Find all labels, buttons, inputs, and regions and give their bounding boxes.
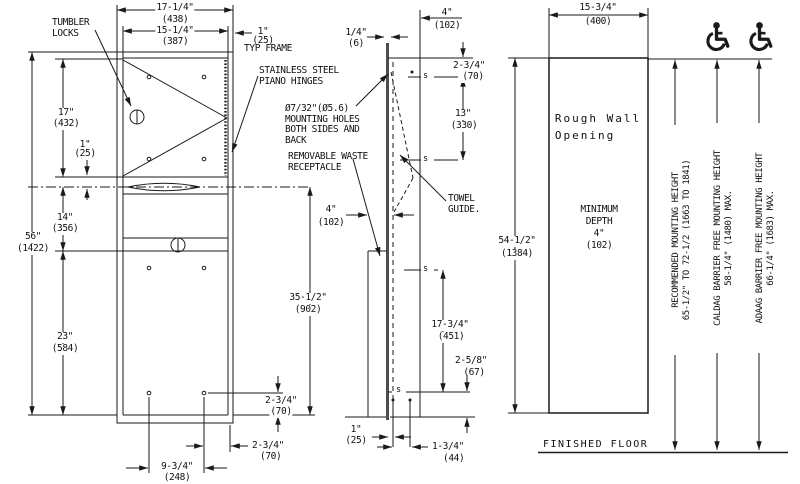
towel-guide-dashed: [391, 72, 413, 212]
dim-depth-mid-mm: (102): [318, 218, 345, 229]
dim-lower-height-in: 23": [56, 332, 74, 343]
dim-front-gap-in: 1-3/4": [432, 442, 464, 453]
caldag-mounting-height-label: CALDAG BARRIER FREE MOUNTING HEIGHT 58-1…: [713, 123, 735, 353]
dim-slot-to-bottom-in: 35-1/2": [288, 293, 327, 304]
wall-opening-view: [508, 8, 788, 453]
s-marker: s: [396, 385, 401, 395]
wheelchair-icon: [751, 22, 771, 49]
dim-depth-top-in: 4": [442, 8, 453, 19]
adaag-mounting-height-label: ADAAG BARRIER FREE MOUNTING HEIGHT 66-1/…: [755, 123, 777, 353]
dim-width-outer-in: 17-1/4": [155, 3, 194, 14]
dim-total-height-mm: (1422): [16, 244, 50, 255]
dim-depth-mid-in: 4": [326, 205, 337, 216]
dim-back-gap-mm: (25): [345, 436, 366, 447]
piano-hinges-label: STAINLESS STEELPIANO HINGES: [259, 66, 339, 87]
tumbler-lock-upper: [130, 110, 144, 124]
waste-receptacle-box: [368, 251, 387, 417]
dim-front-gap-mm: (44): [443, 454, 464, 465]
dim-trim-mm: (6): [348, 39, 364, 50]
dim-typ-frame-note: TYP FRAME: [244, 44, 292, 55]
mounting-holes-leader: [356, 74, 388, 106]
dim-hole-bottom-offset-mm: (70): [269, 407, 292, 418]
dim-opening-width-mm: (400): [585, 17, 612, 28]
dim-width-inner-mm: (387): [162, 37, 189, 48]
dim-hole-span-lower-mm: (451): [437, 332, 466, 343]
dim-opening-height-in: 54-1/2": [497, 236, 536, 247]
dim-opening-width-in: 15-3/4": [578, 3, 617, 14]
mounting-holes: [147, 75, 206, 395]
recommended-mounting-height-label: RECOMMENDED MOUNTING HEIGHT 65-1/2" TO 7…: [671, 125, 693, 355]
s-marker: s: [423, 154, 428, 164]
dim-lower-height-mm: (584): [51, 344, 80, 355]
removable-waste-label: REMOVABLE WASTERECEPTACLE: [288, 152, 368, 173]
minimum-depth-label: MINIMUMDEPTH 4"(102): [580, 204, 617, 252]
dim-mid-height-mm: (356): [51, 224, 80, 235]
dim-depth-top-mm: (102): [434, 21, 461, 32]
tumbler-locks-label: TUMBLERLOCKS: [52, 18, 89, 39]
dim-opening-height-mm: (1384): [500, 249, 534, 260]
s-marker: s: [423, 71, 428, 81]
dim-hole-side-offset-mm: (70): [260, 452, 281, 463]
dim-bottom-hole-in: 2-5/8": [455, 356, 487, 367]
mounting-holes-label: Ø7/32"(Ø5.6)MOUNTING HOLES BOTH SIDES AN…: [285, 104, 359, 147]
finished-floor-label: FINISHED FLOOR: [543, 439, 648, 450]
towel-guide-label: TOWELGUIDE.: [448, 194, 480, 215]
dim-door-height-mm: (432): [52, 119, 81, 130]
dim-hole-span-upper-in: 13": [454, 109, 472, 120]
dim-hole-span-lower-in: 17-3/4": [430, 320, 469, 331]
piano-hinges-leader: [232, 76, 258, 152]
rough-wall-opening-label: Rough WallOpening: [555, 110, 641, 144]
dim-slot-to-bottom-mm: (902): [294, 305, 323, 316]
tumbler-locks-leader: [95, 30, 131, 106]
section-view: [345, 10, 475, 447]
wheelchair-icon: [708, 22, 728, 49]
installation-drawing: TUMBLERLOCKS 17-1/4" (438) 15-1/4" (387)…: [0, 0, 800, 484]
s-marker: s: [423, 264, 428, 274]
tumbler-lock-lower: [171, 238, 185, 252]
dim-hole-span-upper-mm: (330): [450, 121, 479, 132]
dim-hole-spacing-mm: (248): [164, 473, 191, 484]
dim-slot-offset-mm: (25): [74, 149, 95, 160]
dim-total-height-in: 56": [24, 232, 42, 243]
dim-bottom-hole-mm: (67): [463, 368, 484, 379]
removable-waste-leader: [353, 159, 380, 256]
dim-top-hole-mm: (70): [461, 72, 484, 83]
